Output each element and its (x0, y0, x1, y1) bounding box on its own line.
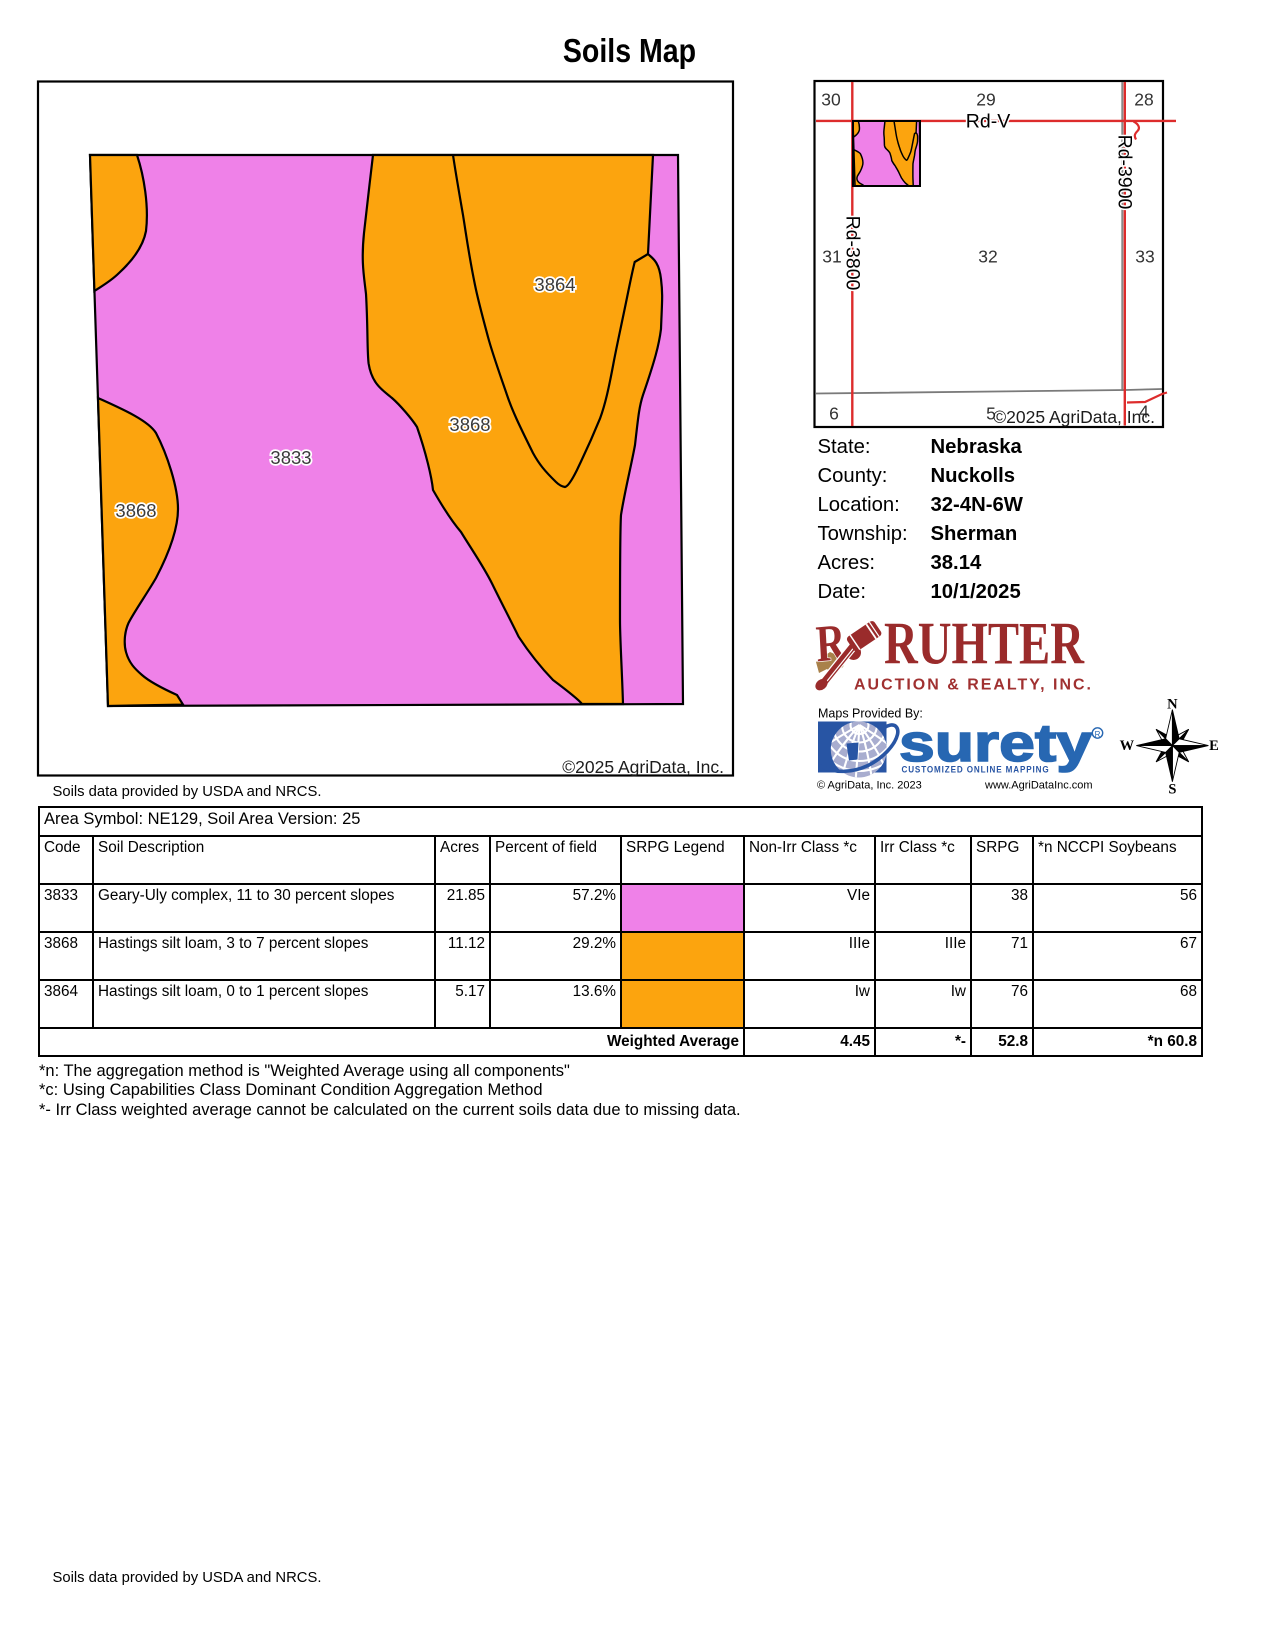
svg-text:©2025 AgriData, Inc.: ©2025 AgriData, Inc. (993, 407, 1155, 427)
svg-text:Nuckolls: Nuckolls (931, 465, 1016, 487)
svg-text:©2025 AgriData, Inc.: ©2025 AgriData, Inc. (562, 757, 724, 777)
svg-text:Nebraska: Nebraska (931, 436, 1023, 458)
svg-text:10/1/2025: 10/1/2025 (931, 581, 1021, 603)
svg-text:32-4N-6W: 32-4N-6W (931, 494, 1024, 516)
svg-text:Acres:: Acres: (818, 552, 875, 574)
svg-text:3833: 3833 (270, 447, 311, 468)
svg-text:31: 31 (822, 247, 841, 267)
svg-text:Date:: Date: (818, 581, 866, 603)
svg-text:W: W (1120, 738, 1135, 754)
svg-text:Soils data provided by USDA an: Soils data provided by USDA and NRCS. (53, 784, 322, 800)
svg-text:3868: 3868 (115, 500, 156, 521)
svg-text:29: 29 (976, 90, 995, 110)
svg-text:S: S (1168, 782, 1176, 798)
svg-text:www.AgriDataInc.com: www.AgriDataInc.com (984, 780, 1093, 792)
svg-text:© AgriData, Inc. 2023: © AgriData, Inc. 2023 (817, 780, 922, 792)
svg-text:28: 28 (1134, 90, 1153, 110)
svg-text:County:: County: (818, 465, 888, 487)
svg-text:State:: State: (818, 436, 871, 458)
svg-text:3864: 3864 (534, 274, 575, 295)
svg-text:E: E (1209, 738, 1219, 754)
svg-text:38.14: 38.14 (931, 552, 982, 574)
svg-text:Sherman: Sherman (931, 523, 1018, 545)
svg-text:Township:: Township: (818, 523, 908, 545)
svg-text:R: R (1095, 730, 1101, 739)
svg-text:6: 6 (829, 404, 839, 424)
svg-text:RUHTER: RUHTER (884, 611, 1085, 677)
svg-text:AUCTION & REALTY, INC.: AUCTION & REALTY, INC. (854, 677, 1093, 694)
svg-text:Rd-V: Rd-V (966, 111, 1010, 133)
svg-text:Rd-3800: Rd-3800 (842, 216, 864, 291)
svg-text:Rd-3900: Rd-3900 (1114, 135, 1136, 210)
svg-text:Location:: Location: (818, 494, 900, 516)
svg-text:N: N (1167, 696, 1178, 712)
svg-text:33: 33 (1135, 247, 1154, 267)
svg-text:32: 32 (978, 247, 997, 267)
svg-text:CUSTOMIZED ONLINE MAPPING: CUSTOMIZED ONLINE MAPPING (902, 765, 1050, 775)
svg-text:3868: 3868 (449, 414, 490, 435)
svg-text:30: 30 (821, 90, 841, 110)
